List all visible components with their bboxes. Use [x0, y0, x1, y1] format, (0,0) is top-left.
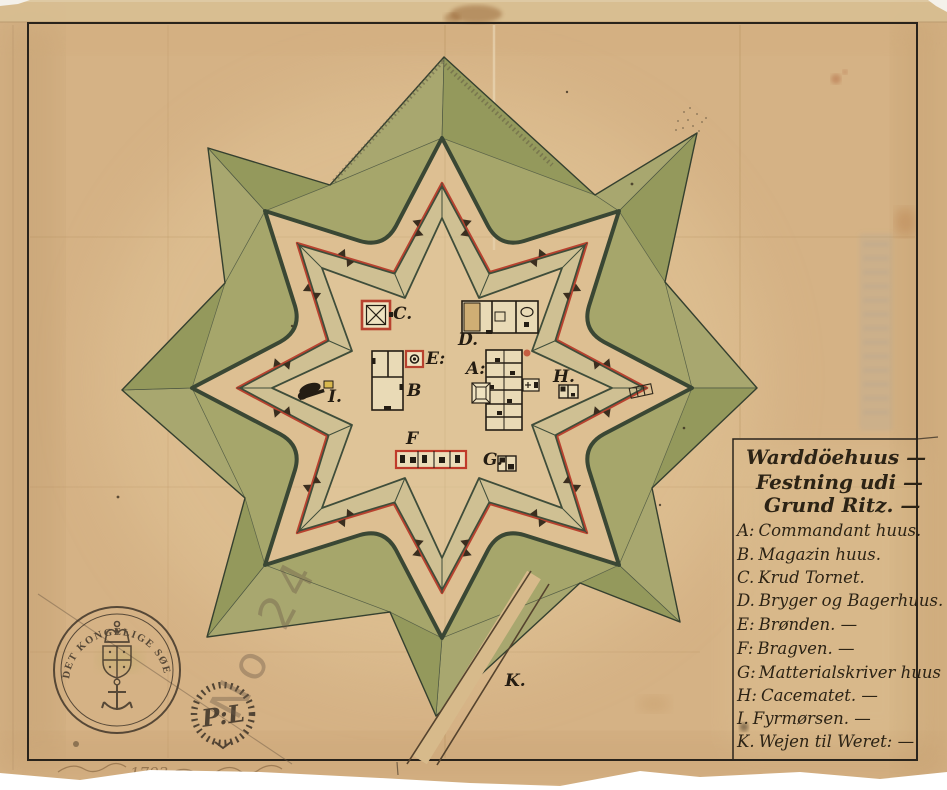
building-magazin-huus: [372, 351, 403, 410]
legend-title-3: Grund Ritz. —: [764, 493, 920, 517]
label-f: F: [405, 429, 420, 449]
label-c: C.: [393, 304, 412, 324]
legend-item: E:Brønden. —: [736, 615, 857, 634]
legend-item: I.Fyrmørsen. —: [736, 709, 871, 728]
fortress-map-svg: A: B C. D. E: F G. H. I. K. Warddöehuus …: [0, 0, 947, 790]
building-krud-tornet: [362, 301, 393, 329]
legend-title-1: Warddöehuus —: [746, 445, 926, 469]
legend-item: G:Matterialskriver huus: [737, 663, 941, 682]
label-g: G.: [483, 450, 503, 470]
building-bragven: [396, 451, 466, 468]
legend-item: K.Wejen til Weret: —: [736, 732, 914, 751]
label-b: B: [406, 381, 421, 401]
legend-item: A:Commandant huus.: [735, 521, 921, 540]
legend-item: D.Bryger og Bagerhuus.: [736, 591, 943, 610]
building-broenden: [406, 351, 423, 367]
label-i: I.: [327, 387, 342, 407]
label-k: K.: [504, 671, 526, 691]
bleedthrough-stamp: [859, 233, 893, 431]
map-canvas: A: B C. D. E: F G. H. I. K. Warddöehuus …: [0, 0, 947, 790]
label-e: E:: [425, 349, 445, 369]
label-a: A:: [464, 359, 485, 379]
legend-title-2: Festning udi —: [755, 470, 923, 494]
label-d: D.: [457, 330, 478, 350]
legend-item: B.Magazin huus.: [736, 545, 881, 564]
label-h: H.: [552, 367, 575, 387]
